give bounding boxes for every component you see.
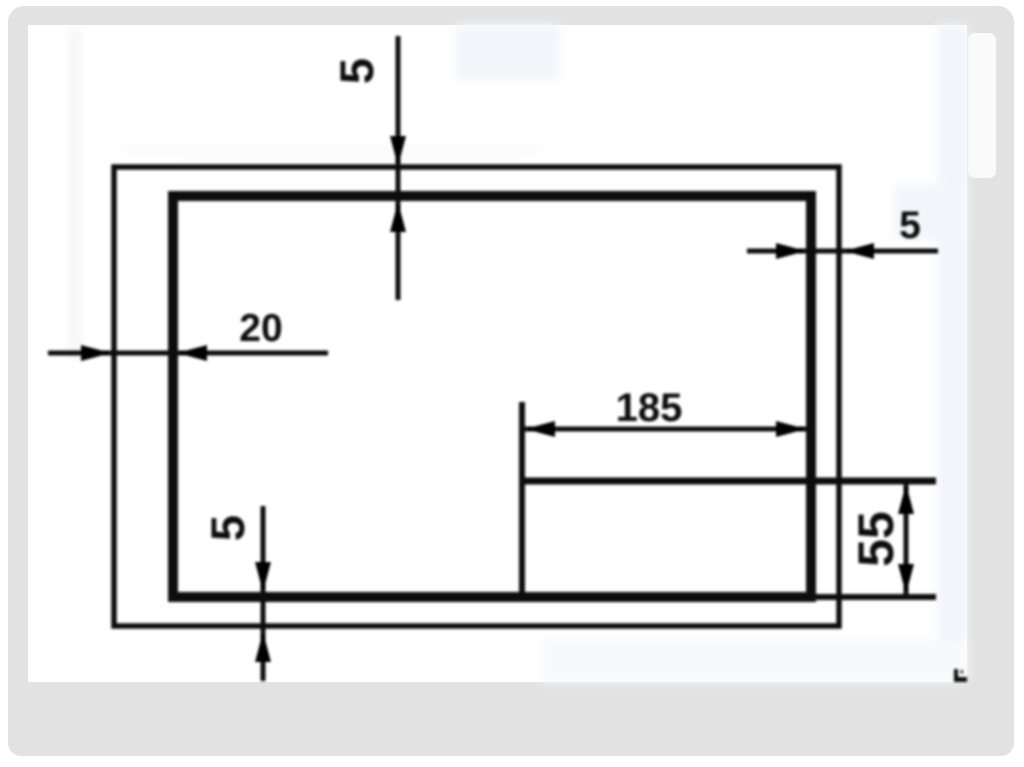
svg-text:5: 5 <box>201 515 254 541</box>
svg-text:20: 20 <box>239 307 282 350</box>
svg-text:185: 185 <box>616 386 683 430</box>
svg-text:55: 55 <box>848 511 904 567</box>
svg-text:5: 5 <box>330 58 383 84</box>
svg-text:5: 5 <box>899 204 921 247</box>
